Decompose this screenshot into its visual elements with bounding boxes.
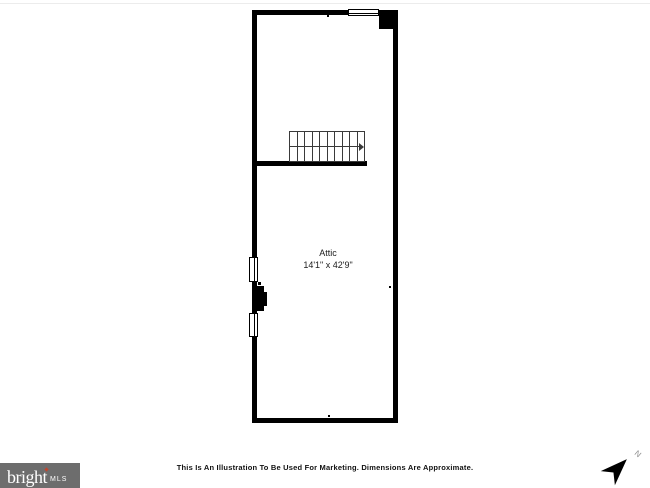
disclaimer-text: This Is An Illustration To Be Used For M… [0, 463, 650, 472]
wall-left [252, 10, 257, 423]
wall-right [393, 10, 398, 423]
compass: N [598, 443, 648, 488]
left-upper-window [249, 257, 258, 282]
room-label-group: Attic 14'1" x 42'9" [262, 247, 394, 271]
room-dimensions: 14'1" x 42'9" [262, 259, 394, 271]
top-window [348, 9, 379, 16]
left-lower-window [249, 313, 258, 337]
left-chimney-notch [258, 282, 261, 285]
compass-arrow-icon [601, 452, 634, 485]
staircase-direction-line [290, 146, 360, 147]
wall-bottom [252, 418, 398, 423]
page: { "canvas": { "background_color": "#ffff… [0, 0, 650, 488]
page-top-hairline [0, 3, 650, 4]
wall-tick-right [389, 286, 391, 288]
brand-suffix: MLS [50, 476, 67, 483]
wall-tick-bottom [328, 415, 330, 417]
wall-tick-top [327, 15, 329, 17]
brand-spark-icon [44, 467, 48, 471]
brand-name: bright [7, 469, 47, 485]
staircase-direction-arrow-icon [359, 143, 364, 151]
room-label: Attic [262, 247, 394, 259]
left-chimney-block-bump [262, 292, 267, 306]
compass-north-label: N [633, 449, 643, 460]
corner-chimney-block [379, 10, 398, 29]
brand-name-text: bright [7, 467, 47, 487]
brand-logo: bright MLS [0, 463, 80, 488]
